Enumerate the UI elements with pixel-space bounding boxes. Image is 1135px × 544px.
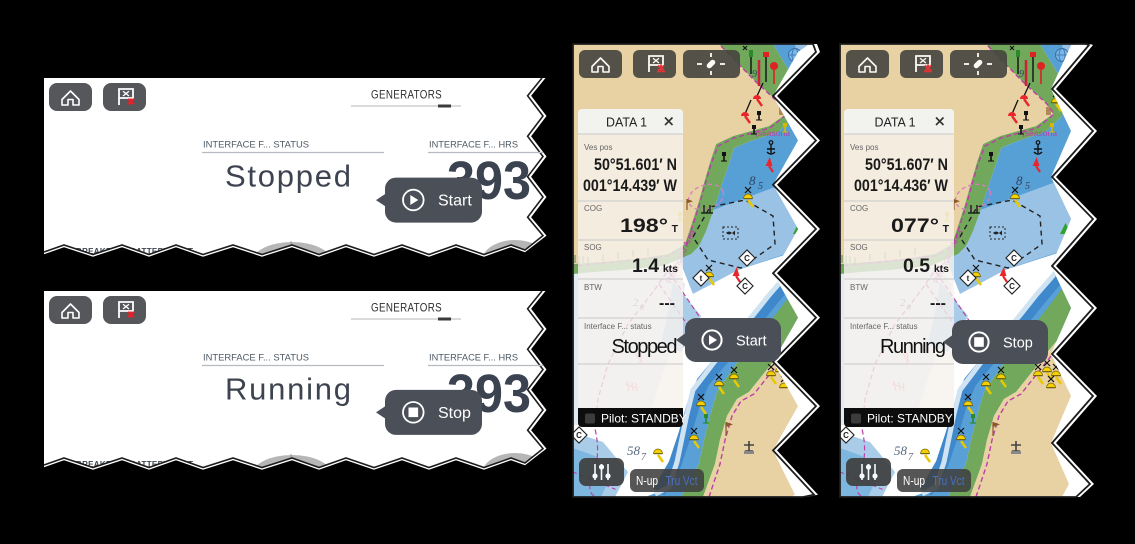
svg-text:SOG: SOG xyxy=(850,243,868,252)
svg-text:Running: Running xyxy=(880,336,946,358)
svg-text:INTERFACE F... STATUS: INTERFACE F... STATUS xyxy=(203,353,309,364)
svg-text:BTW: BTW xyxy=(584,283,602,292)
svg-text:Pilot: STANDBY: Pilot: STANDBY xyxy=(867,412,953,426)
svg-text:GENERATORS: GENERATORS xyxy=(371,303,442,315)
svg-text:Stop: Stop xyxy=(438,405,471,422)
svg-text:N-up: N-up xyxy=(636,474,658,488)
svg-text:kts: kts xyxy=(663,263,678,275)
svg-text:---: --- xyxy=(659,295,675,312)
svg-text:DATA 1: DATA 1 xyxy=(875,116,916,130)
svg-text:Start: Start xyxy=(736,334,767,350)
svg-text:T: T xyxy=(672,223,679,235)
svg-text:Tru Vct: Tru Vct xyxy=(933,474,965,488)
svg-text:COG: COG xyxy=(850,204,868,213)
svg-text:1.4: 1.4 xyxy=(632,255,659,277)
svg-text:198°: 198° xyxy=(620,215,668,237)
svg-text:Stop: Stop xyxy=(1003,336,1033,352)
svg-text:---: --- xyxy=(930,295,946,312)
svg-text:T: T xyxy=(943,223,950,235)
svg-text:50°51.601′ N: 50°51.601′ N xyxy=(594,156,677,174)
svg-text:INTERFACE F... HRS: INTERFACE F... HRS xyxy=(429,140,518,151)
svg-text:INTERFACE F... STATUS: INTERFACE F... STATUS xyxy=(203,140,309,151)
svg-text:001°14.436′ W: 001°14.436′ W xyxy=(854,177,948,195)
svg-text:COG: COG xyxy=(584,204,602,213)
svg-text:GENERATORS: GENERATORS xyxy=(371,90,442,102)
svg-text:Stopped: Stopped xyxy=(612,336,678,358)
svg-text:077°: 077° xyxy=(891,215,939,237)
svg-text:50°51.607′ N: 50°51.607′ N xyxy=(865,156,948,174)
svg-text:N-up: N-up xyxy=(903,474,925,488)
svg-text:Interface F... status: Interface F... status xyxy=(584,322,652,331)
svg-text:Interface F... status: Interface F... status xyxy=(850,322,918,331)
svg-text:BTW: BTW xyxy=(850,283,868,292)
svg-text:kts: kts xyxy=(934,263,949,275)
svg-text:001°14.439′ W: 001°14.439′ W xyxy=(583,177,677,195)
svg-text:Start: Start xyxy=(438,193,472,210)
svg-text:SOG: SOG xyxy=(584,243,602,252)
svg-text:DATA 1: DATA 1 xyxy=(606,116,647,130)
svg-text:0.5: 0.5 xyxy=(903,255,930,277)
svg-text:Ves pos: Ves pos xyxy=(850,143,878,152)
svg-text:Pilot: STANDBY: Pilot: STANDBY xyxy=(601,412,687,426)
svg-text:Ves pos: Ves pos xyxy=(584,143,612,152)
svg-text:INTERFACE F... HRS: INTERFACE F... HRS xyxy=(429,353,518,364)
svg-text:Tru Vct: Tru Vct xyxy=(666,474,698,488)
